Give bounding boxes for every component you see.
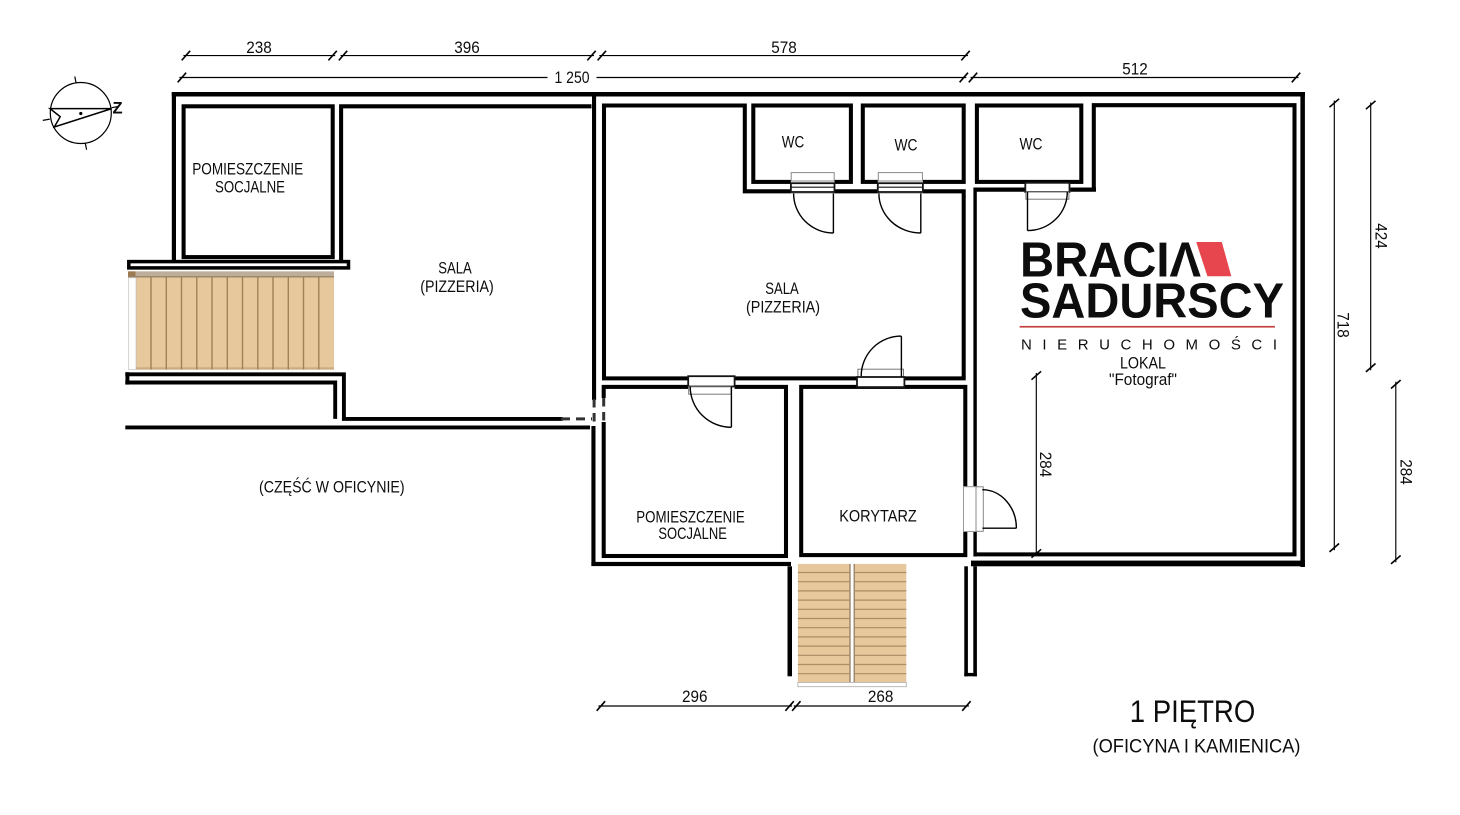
- svg-text:"Fotograf": "Fotograf": [1109, 371, 1177, 389]
- svg-text:Z: Z: [113, 100, 123, 118]
- svg-text:396: 396: [454, 38, 480, 57]
- svg-text:SOCJALNE: SOCJALNE: [658, 525, 727, 543]
- svg-text:KORYTARZ: KORYTARZ: [839, 507, 917, 525]
- svg-text:(PIZZERIA): (PIZZERIA): [746, 298, 820, 316]
- svg-text:(CZĘŚĆ W OFICYNIE): (CZĘŚĆ W OFICYNIE): [259, 478, 405, 497]
- svg-text:718: 718: [1334, 312, 1353, 338]
- svg-text:(PIZZERIA): (PIZZERIA): [420, 278, 494, 296]
- svg-text:WC: WC: [782, 134, 805, 152]
- svg-text:512: 512: [1122, 60, 1148, 79]
- svg-text:LOKAL: LOKAL: [1120, 355, 1166, 373]
- svg-text:284: 284: [1036, 452, 1055, 478]
- svg-text:POMIESZCZENIE: POMIESZCZENIE: [192, 161, 303, 179]
- svg-text:POMIESZCZENIE: POMIESZCZENIE: [636, 508, 745, 526]
- svg-text:SALA: SALA: [438, 260, 472, 278]
- svg-text:1 250: 1 250: [555, 68, 590, 87]
- svg-text:SALA: SALA: [765, 280, 799, 298]
- svg-text:(OFICYNA I KAMIENICA): (OFICYNA I KAMIENICA): [1093, 736, 1301, 758]
- svg-text:WC: WC: [895, 137, 918, 155]
- svg-text:268: 268: [868, 687, 894, 706]
- svg-text:578: 578: [771, 38, 797, 57]
- svg-text:296: 296: [682, 687, 708, 706]
- svg-text:1 PIĘTRO: 1 PIĘTRO: [1130, 693, 1256, 729]
- svg-text:SADURSCY: SADURSCY: [1020, 274, 1284, 329]
- svg-text:424: 424: [1372, 223, 1391, 249]
- svg-text:238: 238: [246, 38, 272, 57]
- svg-text:SOCJALNE: SOCJALNE: [215, 179, 285, 197]
- svg-text:NIERUCHOMOŚCI: NIERUCHOMOŚCI: [1021, 335, 1277, 353]
- svg-text:284: 284: [1397, 459, 1416, 485]
- svg-text:WC: WC: [1020, 135, 1043, 153]
